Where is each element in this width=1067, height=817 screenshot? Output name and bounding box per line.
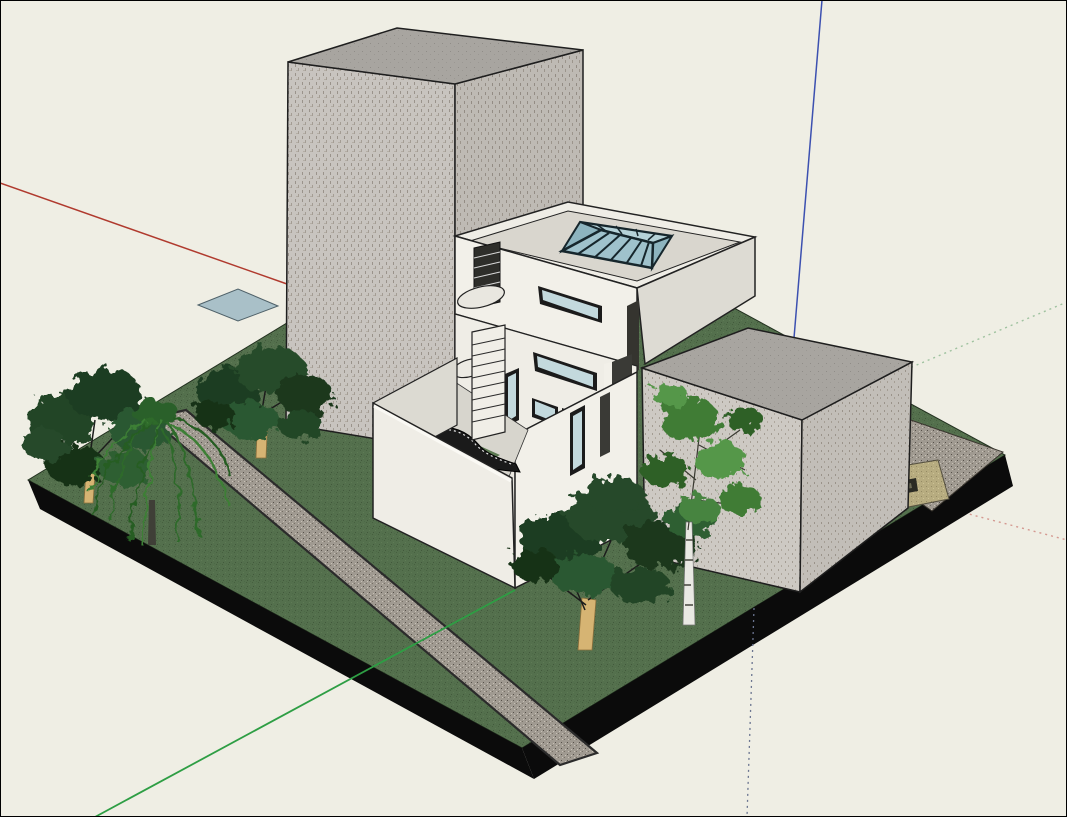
window-tall-right-2 [600,392,610,457]
exterior-stair-main [472,325,505,440]
trunk [148,500,156,545]
model-canvas[interactable] [0,0,1067,817]
model-viewport[interactable] [0,0,1067,817]
